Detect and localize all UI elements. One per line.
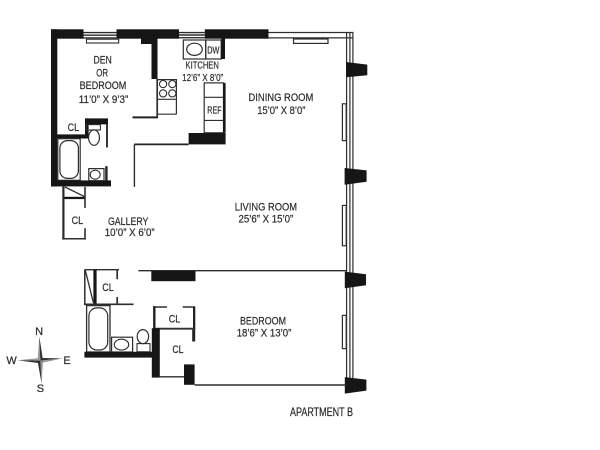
svg-text:S: S <box>37 383 44 395</box>
svg-text:11’0” X 9’3”: 11’0” X 9’3” <box>79 94 129 106</box>
svg-text:DEN: DEN <box>93 55 111 67</box>
svg-text:E: E <box>63 355 70 367</box>
svg-text:BEDROOM: BEDROOM <box>80 80 127 92</box>
svg-text:CL: CL <box>102 282 114 294</box>
svg-text:DW: DW <box>207 45 220 56</box>
svg-text:DINING ROOM: DINING ROOM <box>249 92 314 104</box>
svg-text:CL: CL <box>172 344 183 356</box>
svg-text:GALLERY: GALLERY <box>108 216 149 228</box>
svg-text:CL: CL <box>169 313 181 325</box>
svg-text:LIVING ROOM: LIVING ROOM <box>235 202 297 214</box>
svg-text:18’6” X 13’0”: 18’6” X 13’0” <box>237 328 292 340</box>
svg-text:APARTMENT B: APARTMENT B <box>290 407 353 419</box>
svg-text:W: W <box>6 355 17 367</box>
svg-text:REF: REF <box>207 105 221 116</box>
svg-text:10’0” X 6’0”: 10’0” X 6’0” <box>105 227 155 239</box>
svg-text:N: N <box>35 326 43 338</box>
svg-text:CL: CL <box>68 122 80 134</box>
svg-text:OR: OR <box>96 67 108 79</box>
svg-text:25’6” X 15’0”: 25’6” X 15’0” <box>239 214 294 226</box>
svg-text:12’6” X 8’0”: 12’6” X 8’0” <box>182 72 223 84</box>
svg-text:15’0” X 8’0”: 15’0” X 8’0” <box>257 105 305 117</box>
svg-text:CL: CL <box>72 215 84 227</box>
svg-text:KITCHEN: KITCHEN <box>186 60 219 72</box>
svg-text:BEDROOM: BEDROOM <box>240 316 286 328</box>
